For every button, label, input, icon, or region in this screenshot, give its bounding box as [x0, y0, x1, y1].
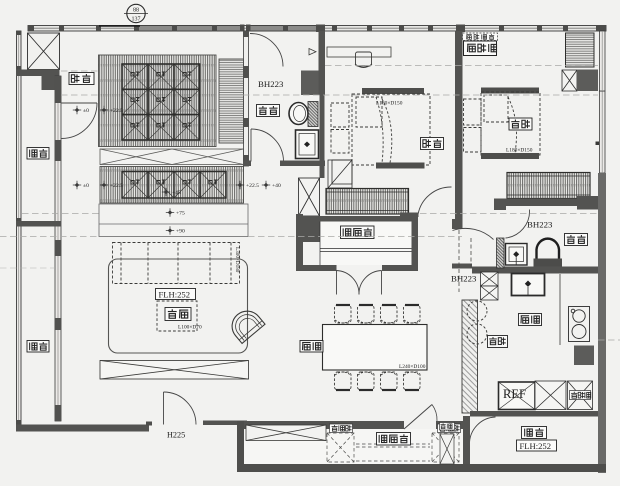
svg-text:L100×D70: L100×D70	[178, 325, 202, 331]
svg-text:L300×D180: L300×D180	[234, 247, 240, 273]
svg-text:+45: +45	[172, 190, 181, 196]
svg-text:+40: +40	[272, 183, 281, 189]
svg-text:H225: H225	[167, 431, 185, 440]
svg-text:88: 88	[133, 8, 139, 14]
svg-text:+22.5: +22.5	[110, 183, 123, 189]
svg-text:L180×D150: L180×D150	[506, 148, 533, 154]
svg-text:L240×D100: L240×D100	[399, 364, 426, 370]
svg-text:±0: ±0	[83, 108, 89, 114]
svg-text:137: 137	[132, 17, 141, 23]
svg-text:+22.5: +22.5	[246, 183, 259, 189]
svg-text:BH223: BH223	[451, 274, 477, 284]
svg-text:+22.5: +22.5	[110, 108, 123, 114]
svg-text:FLH:252: FLH:252	[520, 441, 552, 451]
svg-text:L180×D150: L180×D150	[376, 101, 403, 107]
svg-text:FLH:252: FLH:252	[159, 290, 191, 300]
svg-text:BH223: BH223	[258, 79, 284, 89]
svg-text:±0: ±0	[83, 183, 89, 189]
svg-text:BH223: BH223	[527, 220, 553, 230]
svg-text:+75: +75	[176, 211, 185, 217]
svg-text:+90: +90	[176, 229, 185, 235]
